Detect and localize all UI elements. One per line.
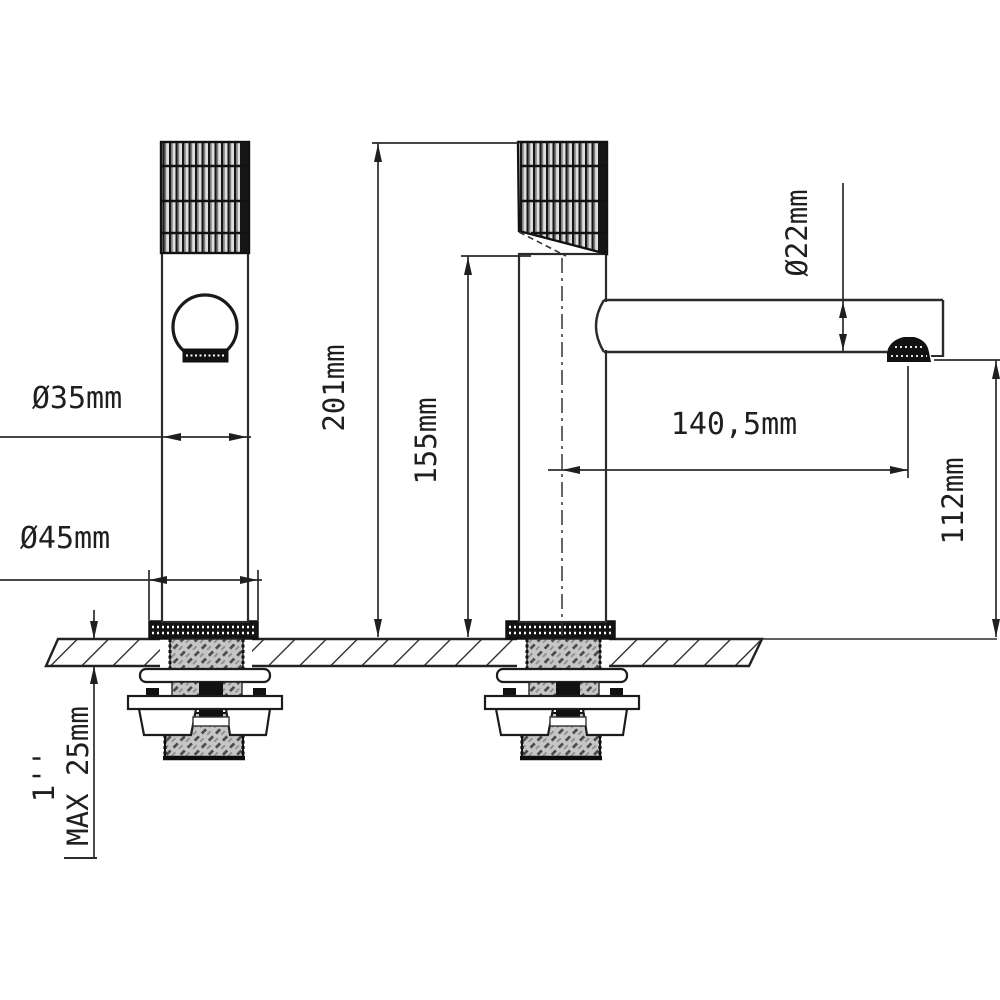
- dimension-lines: [0, 143, 1000, 858]
- arrow-max25-bottom: [90, 666, 98, 684]
- arrow-max25-top: [90, 621, 98, 639]
- pipe-slot: [193, 717, 229, 726]
- arrow-112-top: [992, 361, 1000, 379]
- arrow-155-bottom: [464, 619, 472, 637]
- label-spout-reach: 140,5mm: [671, 407, 797, 442]
- arrow-d45-left: [149, 576, 167, 584]
- spout-joint-eraser: [599, 302, 611, 350]
- countertop-hatch: [46, 639, 762, 666]
- flange-washer: [140, 669, 270, 682]
- faucet-dimension-drawing: Ø35mm Ø45mm 201mm 155mm Ø22mm 140,5mm 11…: [0, 0, 1000, 1000]
- arrow-140-right: [890, 466, 908, 474]
- handle-shading: [240, 143, 248, 252]
- arrow-d22-top: [839, 302, 847, 318]
- locknut-right: [226, 709, 270, 735]
- handle-shading-side: [598, 143, 607, 253]
- retaining-bar: [128, 696, 282, 709]
- label-max-counter-thickness: MAX 25mm: [61, 706, 95, 846]
- shank-through-counter: [170, 639, 243, 669]
- faucet-handle-side: [518, 142, 607, 254]
- faucet-side-view: [518, 142, 943, 636]
- label-base-diameter: Ø45mm: [20, 521, 110, 556]
- arrow-d22-bottom: [839, 334, 847, 350]
- label-thread-size: 1'': [27, 750, 61, 802]
- arrow-201-bottom: [374, 619, 382, 637]
- locknut-left: [139, 709, 196, 735]
- arrow-155-top: [464, 257, 472, 275]
- arrow-112-bottom: [992, 619, 1000, 637]
- faucet-handle-front: [161, 142, 249, 253]
- label-body-height: 155mm: [409, 397, 443, 484]
- technical-drawing-page: Ø35mm Ø45mm 201mm 155mm Ø22mm 140,5mm 11…: [0, 0, 1000, 1000]
- faucet-front-view: [161, 142, 249, 622]
- label-total-height: 201mm: [317, 344, 351, 431]
- label-spout-diameter: Ø22mm: [780, 189, 814, 276]
- base-ring: [149, 621, 258, 639]
- label-body-diameter: Ø35mm: [32, 381, 122, 416]
- label-outlet-height: 112mm: [936, 457, 970, 544]
- arrow-201-top: [374, 144, 382, 162]
- aerator: [887, 337, 931, 362]
